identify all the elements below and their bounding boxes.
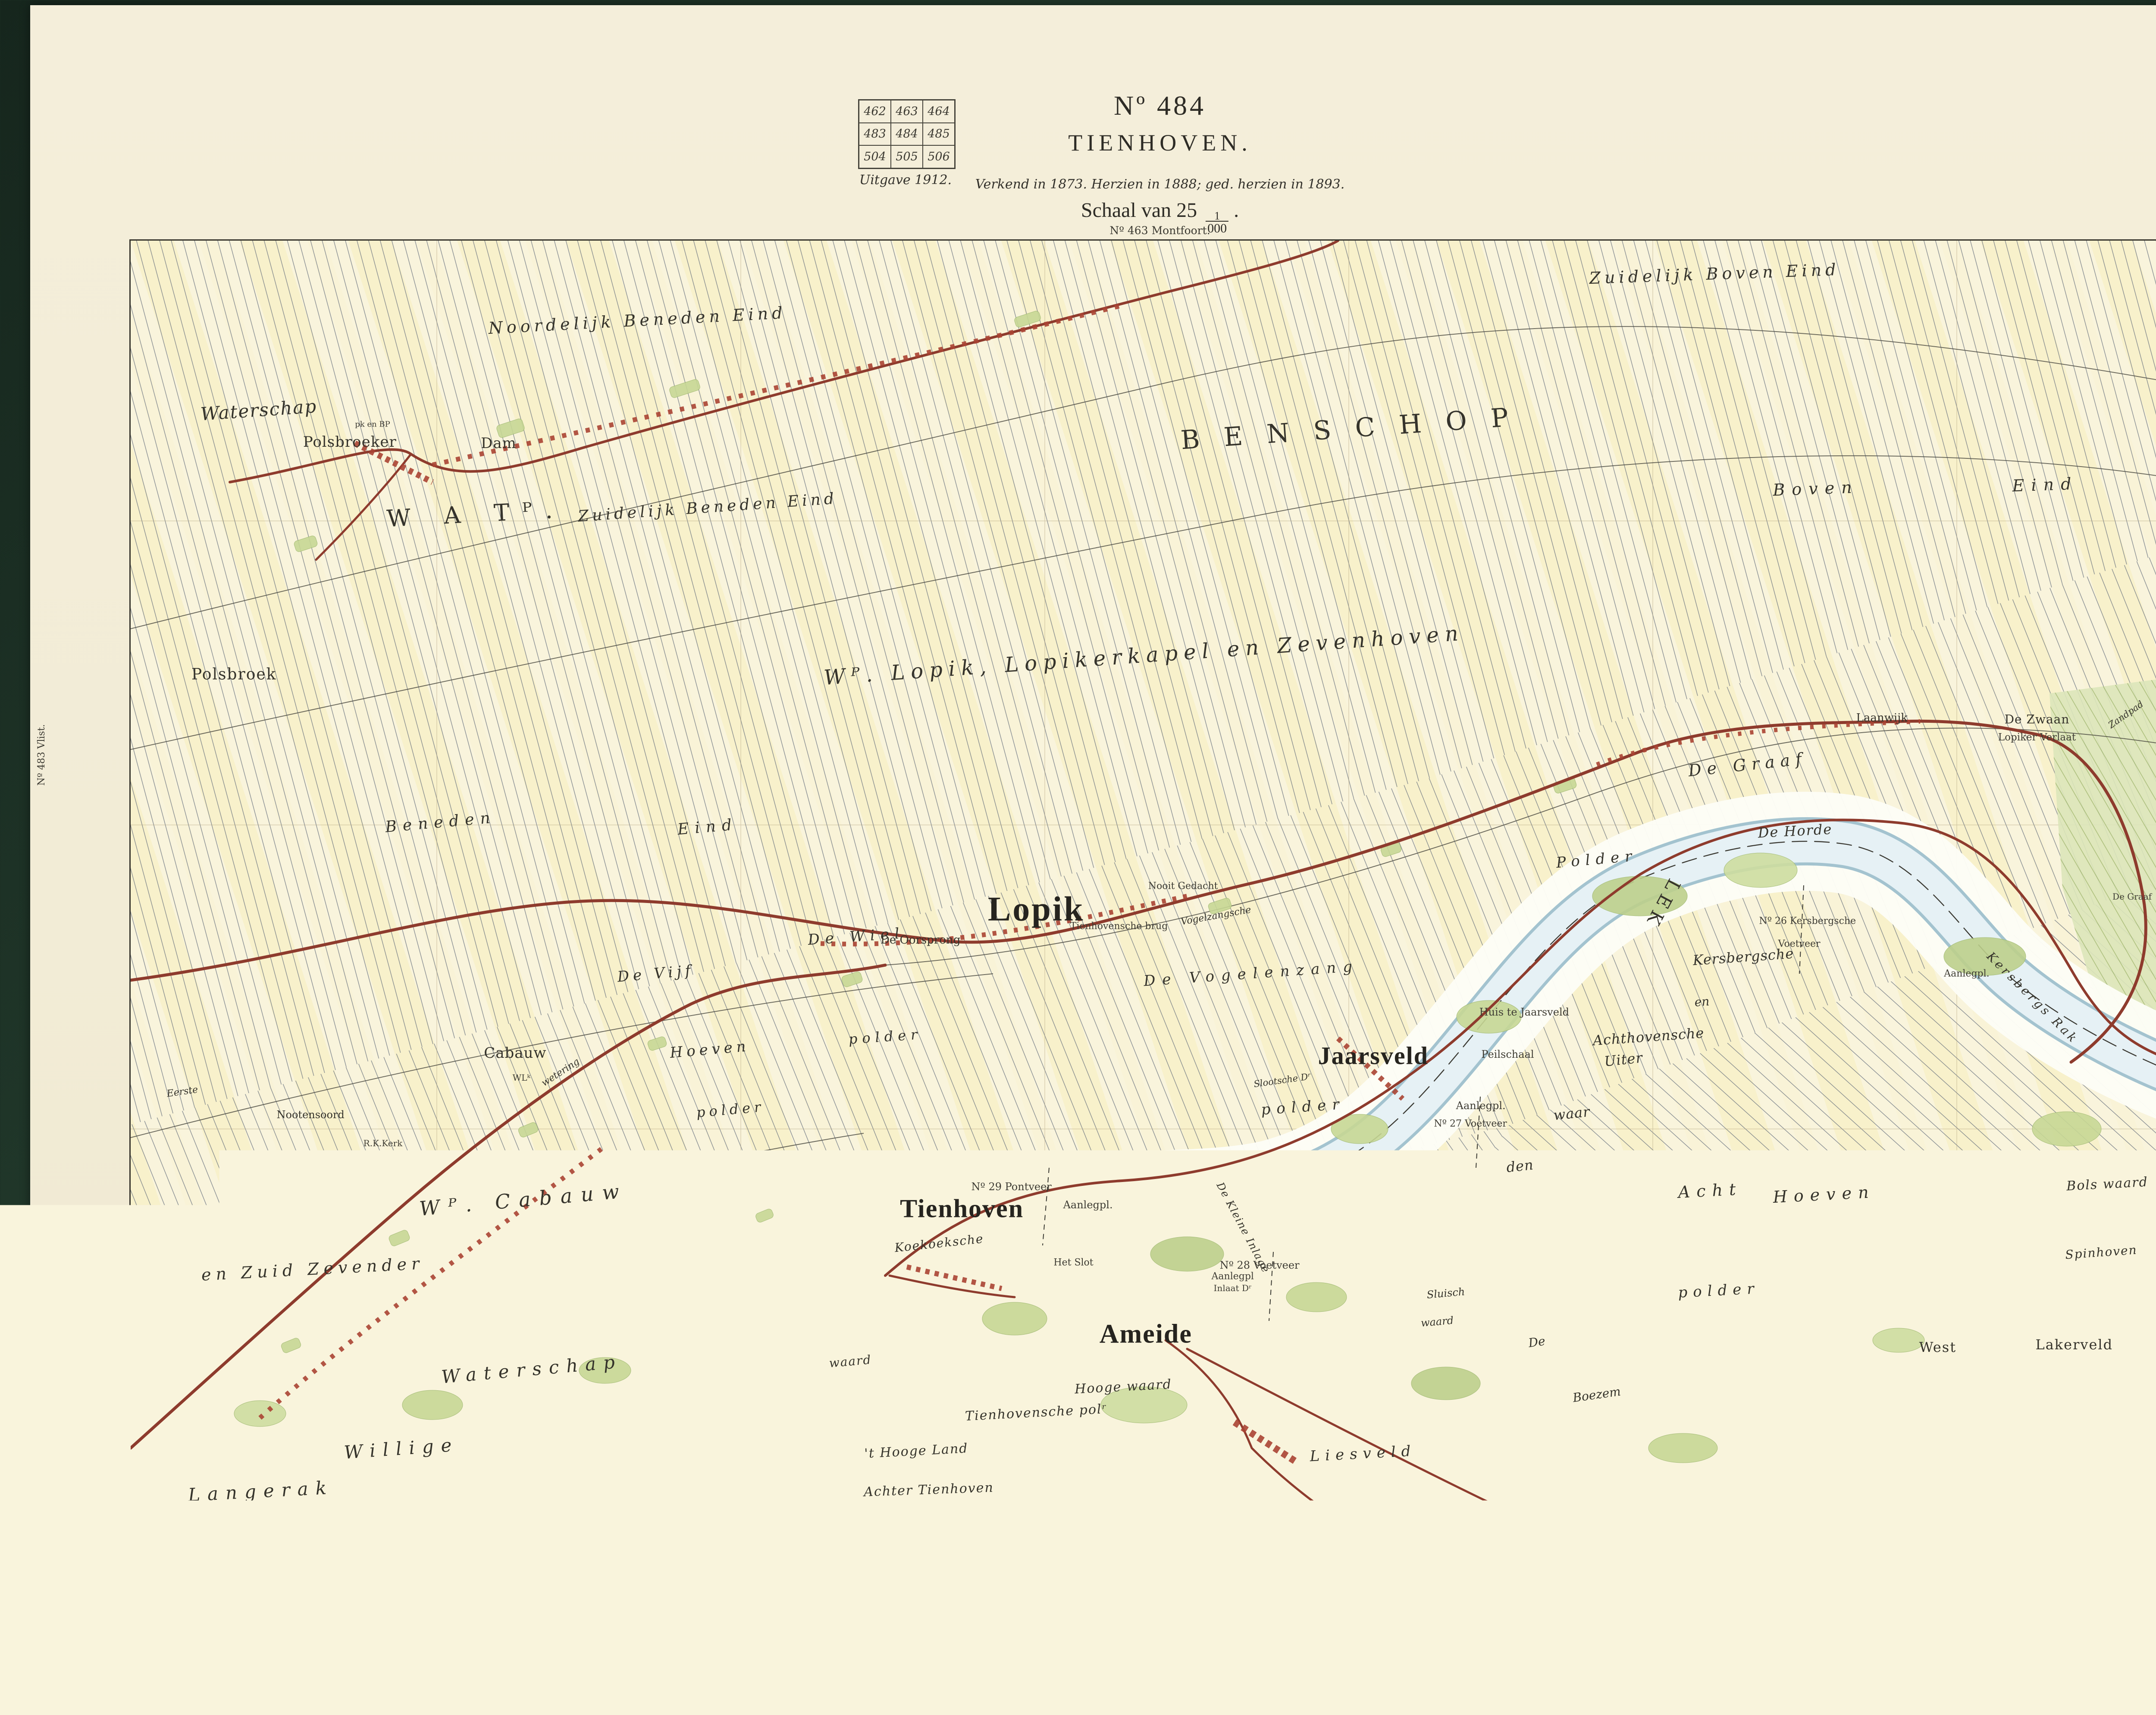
map-label: Aanlegpl [1212,1271,1254,1282]
map-label: Nº 29 Pontveer [971,1181,1052,1193]
map-label: Nº 26 Kersbergsche [1759,916,1856,926]
map-sheet: 462463464483484485504505506 Uitgave 1912… [30,5,2156,1665]
map-label: Polsbroek [191,666,276,683]
copyright-note: De Auteursrechten zijn voorbehouden ten … [927,1619,1402,1632]
map-label: Voetveer [1778,939,1821,950]
map-label: Het Slot [1053,1257,1093,1268]
scalebar-tick-label: 1000 [931,1597,963,1612]
map-label: De Zwaan [2005,712,2070,727]
scalebar-tick-label: 1750 [774,1597,807,1612]
scalebar-tick [1677,1585,1677,1592]
scalebar-tick-label: 2500 [617,1597,650,1612]
map-label: polder [1677,1280,1760,1301]
scalebar-tick-label: 1250 [878,1597,911,1612]
map-label: Nº 27 Voetveer [1434,1119,1507,1129]
map-label: Hoeven [669,1037,750,1061]
scalebar-tick [738,1585,739,1592]
map-label: Boezem [1572,1384,1621,1405]
map-label: Laanwijk [1856,712,1908,724]
revision-note: Verkend in 1873. Herzien in 1888; ged. h… [975,177,1345,192]
map-label: LEK [1641,875,1685,933]
map-label: Jaarsveld [1318,1041,1429,1070]
map-label: Ameide [1100,1319,1192,1350]
map-label: polder [1260,1096,1346,1119]
map-label: De Vogelenzang [1143,957,1360,990]
map-label: Aanlegpl. [1456,1100,1506,1112]
map-label: en Zuid Zevender [201,1254,424,1284]
map-label: Boven [1773,477,1859,499]
scalebar-tick-label: 250 [1091,1597,1116,1612]
scalebar-tick [634,1585,635,1592]
map-label: waard [1420,1314,1454,1329]
map-label: polder [696,1099,765,1121]
map-label: W A Tᴾ. [386,496,566,533]
scalebar-tick-label: 2250 [670,1597,702,1612]
map-label: Vogelzangsche [1180,904,1252,927]
scalebar-tick-label: 500 [1039,1597,1063,1612]
map-label: Lopiker Verlaat [1998,732,2076,743]
map-label: en [1694,994,1710,1010]
index-grid-cell: 483 [859,123,891,146]
index-grid-cell: 506 [923,145,955,168]
map-label: Aanlegpl. [1944,968,1989,979]
map-label: Willige [343,1434,460,1463]
map-label: Lakerveld [2035,1336,2113,1353]
map-label: Tienhoven [900,1194,1024,1223]
index-grid-cell: 462 [859,100,891,123]
map-label: Zuidelijk Boven Eind [1589,260,1840,288]
scalebar-tick [843,1585,843,1592]
map-label: polder [848,1026,923,1047]
map-label: Eind [677,816,738,839]
scalebar-tick [999,1585,1000,1592]
map-label: Waterschap [200,395,318,425]
scalebar-tick [686,1585,687,1592]
map-label: Zandpad [2106,699,2145,730]
map-label: West [1919,1339,1957,1355]
edition-note: Uitgave 1912. [859,172,952,188]
scalebar-tick [947,1585,948,1592]
map-label: De Graaf [2112,891,2152,902]
map-label: waard [828,1352,872,1370]
map-label: Koekoeksche [894,1232,984,1255]
map-label: Tienhovensche polʳ [965,1401,1108,1424]
map-label: WLᵏ [513,1072,530,1083]
scalebar-tick [1051,1585,1052,1592]
map-label: Wᴾ. Lopik, Lopikerkapel en Zevenhoven [823,621,1465,690]
map-label: Hooge waard [1074,1377,1172,1397]
map-label: Wᴾ. Cabauw [418,1179,628,1220]
index-grid-cell: 485 [923,123,955,146]
map-label: Slootsche Dʳ [1253,1071,1312,1089]
imprint: Topographische Inrichting. [118,1539,331,1556]
map-label: Waterschap [441,1351,623,1387]
map-label: waar [1553,1104,1591,1124]
map-label: Polder [1555,847,1638,872]
scalebar-title: Schaal van 5000 Meter. [980,1556,1159,1578]
map-label: den [1506,1157,1535,1176]
map-label: De [1527,1334,1546,1350]
reprint-forbidden-note: Nadruk verboden. [1112,1640,1216,1653]
map-label: Dam [481,435,517,452]
map-label: Kersbergs Rak [1984,949,2081,1047]
index-grid-cell: 463 [891,100,923,123]
scalebar-tick [895,1585,896,1592]
map-label: Cabauw [484,1044,546,1062]
map-label: Eerste [166,1084,199,1099]
map-canvas: Noordelijk Beneden EindZuidelijk Boven E… [129,239,2156,1526]
map-label: Noordelijk Beneden Eind [488,303,787,337]
map-label: Eind [2012,474,2078,495]
map-label: Spinhoven [2065,1243,2137,1262]
map-label: Achthovensche [1592,1025,1705,1049]
map-label: Achter Tienhoven [864,1480,994,1500]
map-label: De Graaf [1687,749,1808,780]
sheet-title: TIENHOVEN. [1068,129,1251,156]
map-label: Peilschaal [1481,1048,1534,1060]
map-label: De Vijf [617,962,695,985]
map-label: Aanlegpl. [1063,1199,1113,1211]
map-labels-layer: Noordelijk Beneden EindZuidelijk Boven E… [131,241,2156,1524]
scale-fraction-numerator: 1 [1214,211,1220,221]
map-label: Nootensoord [277,1109,345,1121]
index-grid-cell: 484 [891,123,923,146]
map-label: pk en BP [355,420,390,429]
map-label: Zuidelijk Beneden Eind [577,490,838,526]
scale-suffix: . [1234,199,1239,222]
map-label: Huis te Jaarsveld [1479,1006,1569,1018]
scale-bar: 25002250200017501500125010007505002500 [634,1584,1677,1593]
map-label: Acht [1678,1179,1743,1202]
scalebar-tick-label: 0 [1151,1597,1159,1612]
map-label: 't Hooge Land [864,1441,968,1462]
map-label: Tienhovensche brug [1070,921,1168,931]
map-label: Langerak [188,1477,334,1505]
map-label: Nooit Gedacht [1148,881,1218,892]
scalebar-tick-label: 2000 [722,1597,755,1612]
index-grid-cell: 504 [859,145,891,168]
scalebar-tick [1156,1585,1156,1592]
sheet-index-grid: 462463464483484485504505506 [858,99,956,169]
scalebar-tick [790,1585,791,1592]
map-label: R.K.Kerk [364,1138,403,1148]
map-label: Hoeven [1773,1182,1876,1207]
map-label: Beneden [385,809,497,836]
adjacent-sheet-top: Nº 463 Montfoort. [1109,224,1210,237]
map-label: polder [1963,1473,2037,1492]
scalebar-right-label: 2500 Meter. [1691,1591,1771,1606]
map-label: Sluisch [1426,1285,1465,1301]
map-label: Uiter [1604,1050,1644,1070]
map-label: Bols waard [2066,1175,2148,1194]
scalebar-tick-label: 1500 [826,1597,859,1612]
map-label: Inlaat Dʳ [1214,1283,1252,1293]
index-grid-cell: 505 [891,145,923,168]
scale-prefix: Schaal van 25 [1081,199,1197,222]
scalebar-tick-label: 750 [987,1597,1011,1612]
adjacent-sheet-bottom: Nº 505 Langerak. [1111,1532,1209,1544]
map-label: BENSCHOP [1180,401,1533,455]
map-label: De Oorsprong [881,934,960,947]
scalebar-tick [1103,1585,1104,1592]
sheet-number: Nº 484 [1114,90,1206,122]
index-grid-cell: 464 [923,100,955,123]
map-label: De Horde [1758,821,1833,841]
map-label: Polsbroeker [303,433,397,451]
map-label: Liesveld [1309,1442,1416,1465]
adjacent-sheet-left: Nº 483 Vlist. [36,724,47,786]
